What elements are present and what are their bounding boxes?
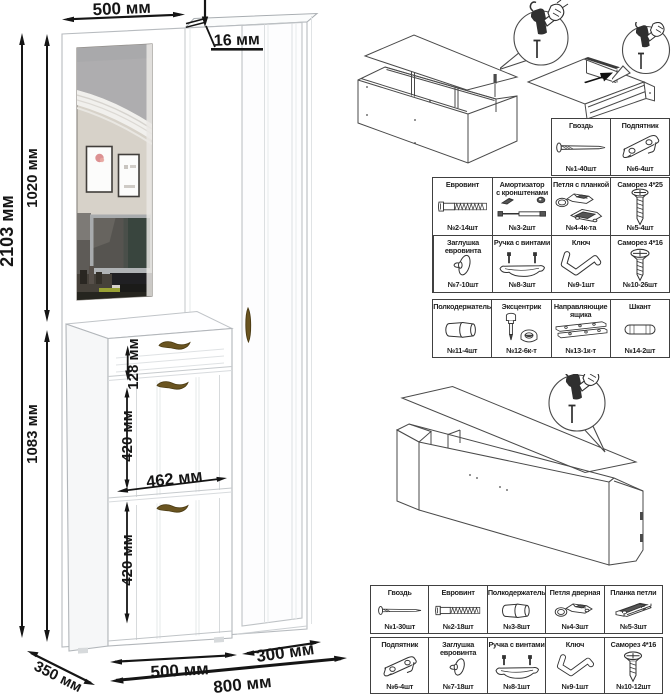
svg-text:500 мм: 500 мм [150, 659, 209, 682]
svg-text:1083 мм: 1083 мм [24, 404, 41, 464]
svg-text:16 мм: 16 мм [214, 31, 260, 50]
svg-text:500 мм: 500 мм [92, 0, 151, 19]
svg-text:420 мм: 420 мм [119, 534, 136, 585]
svg-text:462 мм: 462 мм [145, 467, 203, 492]
svg-text:2103 мм: 2103 мм [0, 195, 17, 267]
svg-text:420 мм: 420 мм [119, 410, 136, 461]
svg-text:1020 мм: 1020 мм [24, 148, 41, 208]
svg-text:350 мм: 350 мм [31, 658, 85, 696]
svg-text:800 мм: 800 мм [212, 672, 272, 697]
svg-text:128 мм: 128 мм [125, 338, 142, 389]
